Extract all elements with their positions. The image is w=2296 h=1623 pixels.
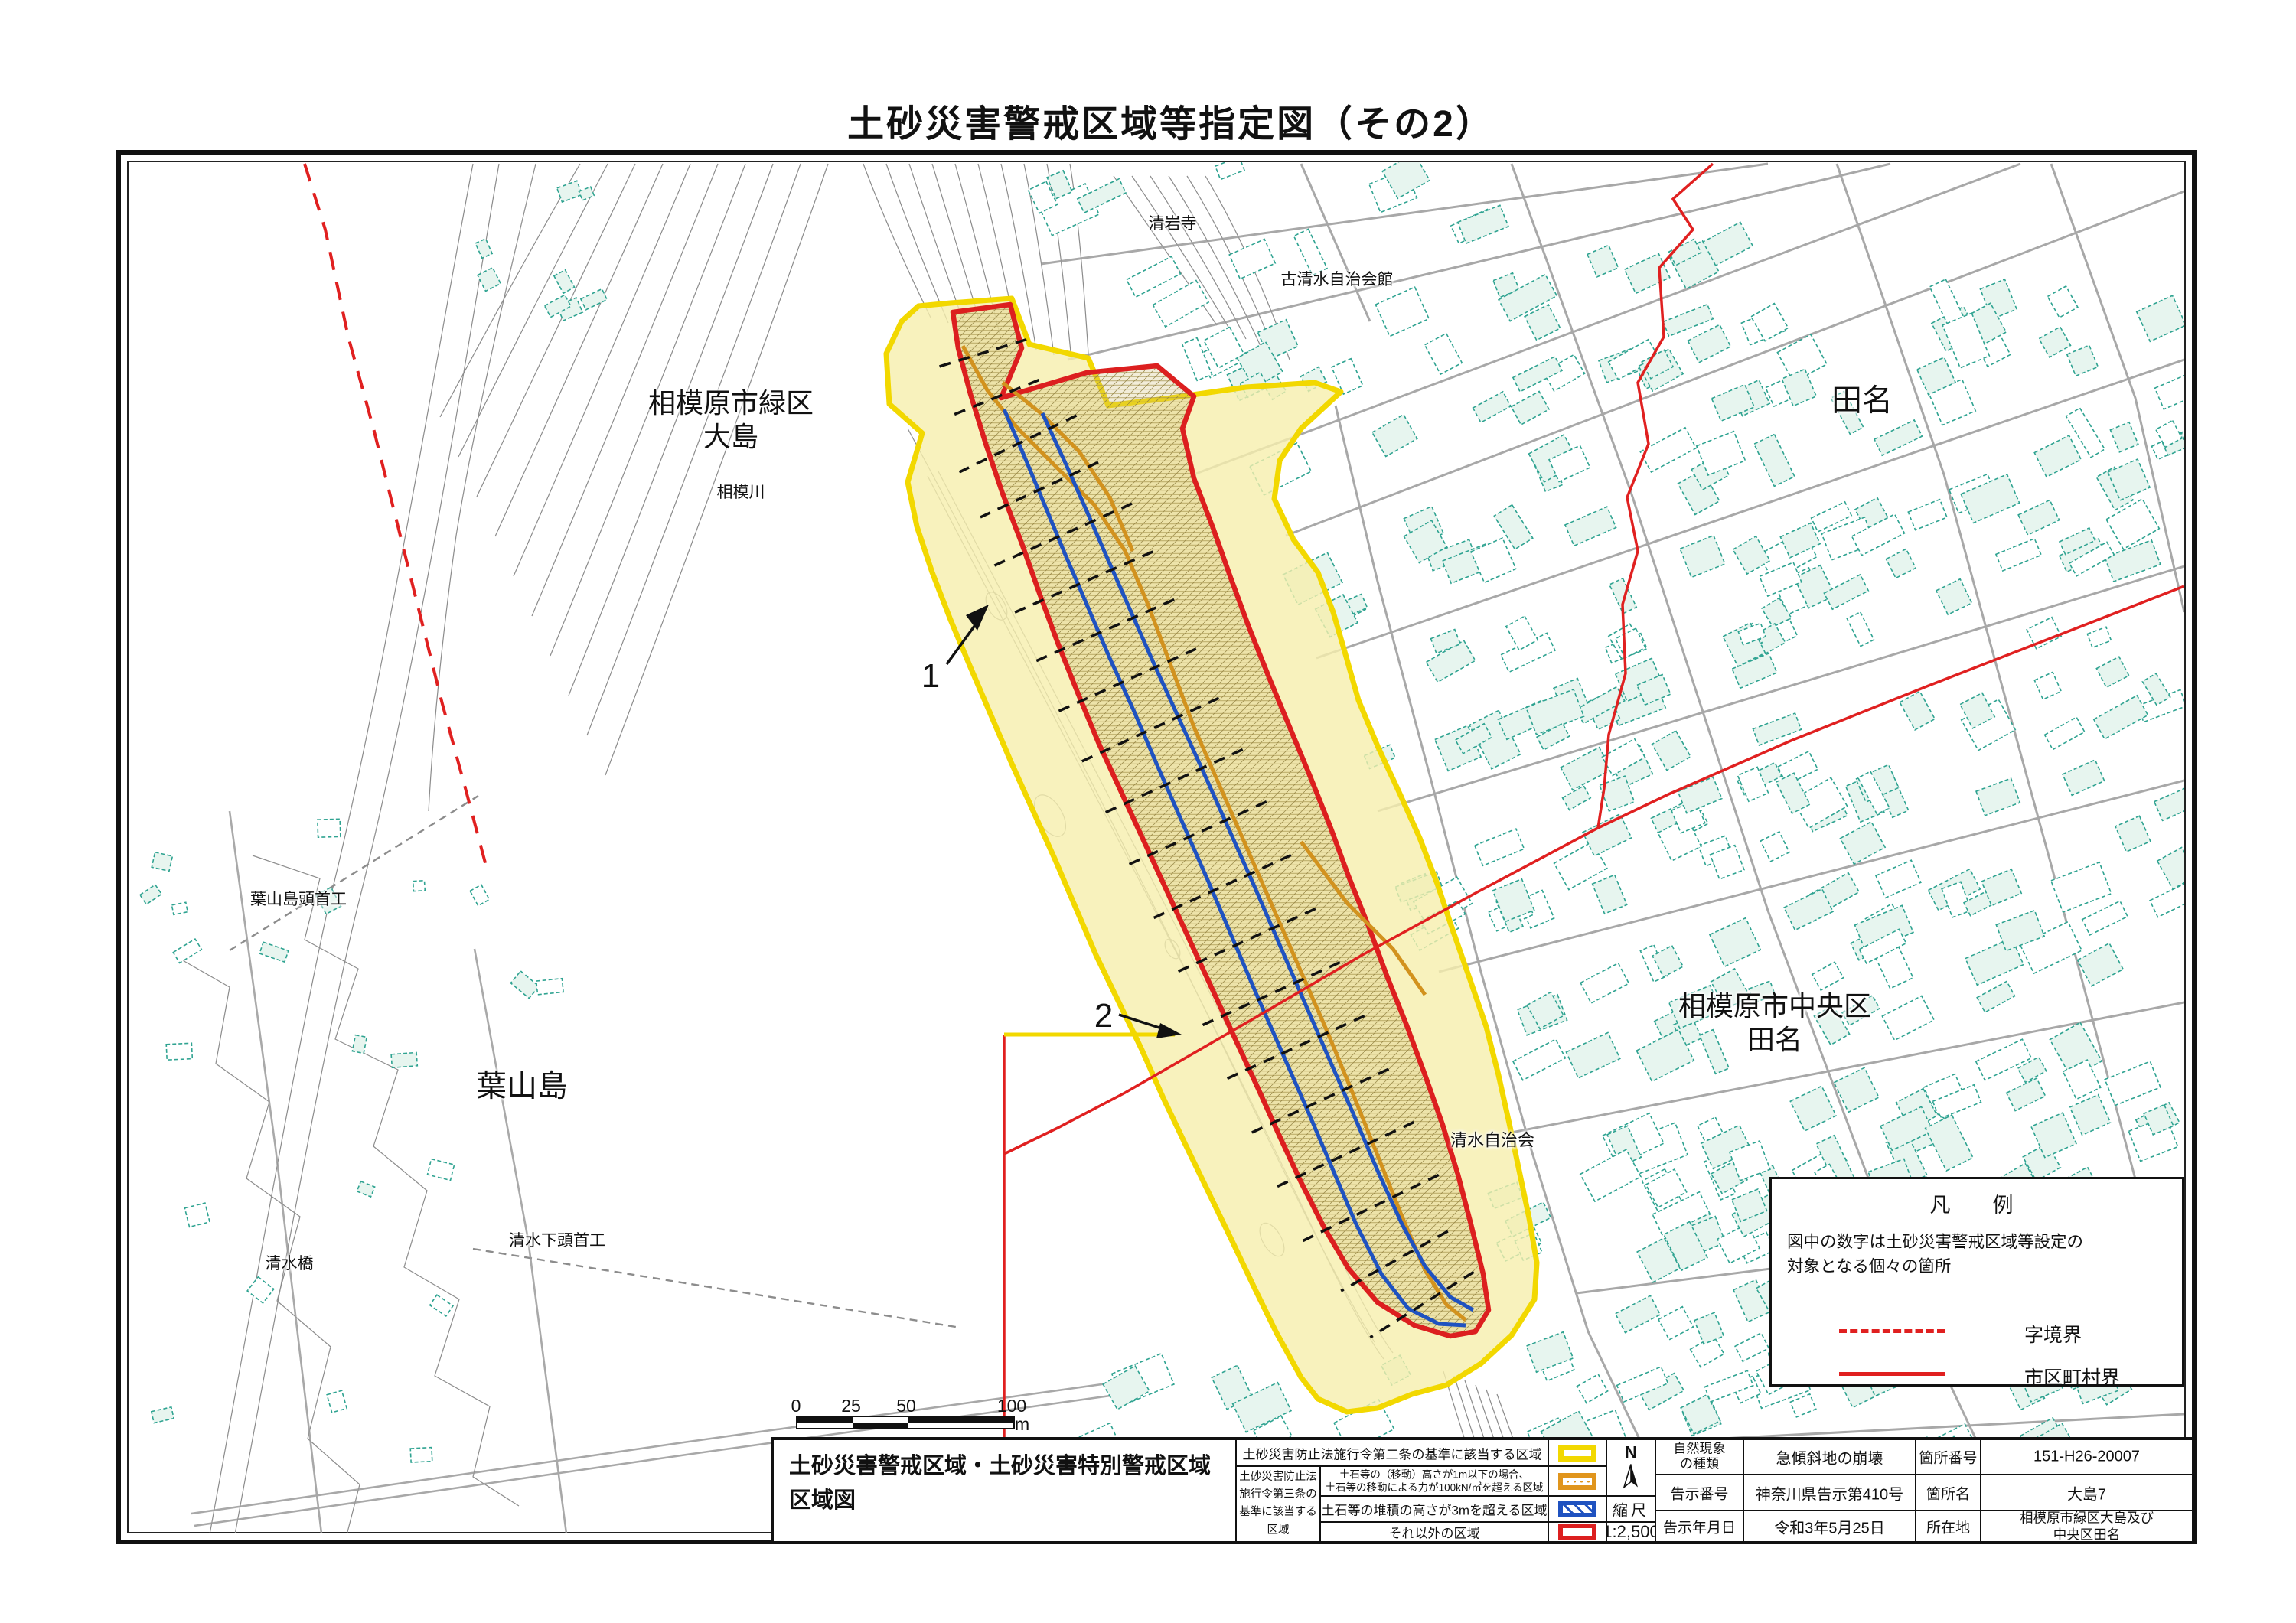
legend-swatch-blue-cell: [1549, 1497, 1607, 1523]
notice-date-label-cell: 告示年月日: [1656, 1511, 1744, 1541]
scale-bar: 0 25 50 100 m: [788, 1396, 1041, 1437]
north-arrow-icon: [1621, 1463, 1641, 1489]
legend-swatch-yellow-cell: [1549, 1440, 1607, 1467]
site-number-value-cell: 151-H26-20007: [1981, 1440, 2192, 1475]
site-name-value-cell: 大島7: [1981, 1475, 2192, 1511]
label-chuo-ward: 相模原市中央区 田名: [1678, 989, 1871, 1057]
notice-number-value-cell: 神奈川県告示第410号: [1744, 1475, 1916, 1511]
label-midori-ward: 相模原市緑区 大島: [648, 386, 814, 454]
phenomenon-value-cell: 急傾斜地の崩壊: [1744, 1440, 1916, 1475]
aza-boundary-label: 字境界: [2024, 1320, 2082, 1348]
legend-row4-label-cell: それ以外の区域: [1321, 1523, 1549, 1541]
notice-date-value-cell: 令和3年5月25日: [1744, 1511, 1916, 1541]
scale-tick-0: 0: [791, 1396, 801, 1416]
annotation-2: 2: [1094, 997, 1113, 1035]
orange-zone-swatch: [1558, 1473, 1596, 1490]
legend-swatch-red-cell: [1549, 1523, 1607, 1541]
aza-boundary-sample: [1839, 1329, 1945, 1333]
scale-tick-25: 25: [841, 1396, 861, 1416]
legend-group-label-cell: 土砂災害防止法 施行令第三条の 基準に該当する 区域: [1237, 1467, 1321, 1541]
label-hayamajima-weir: 葉山島頭首工: [250, 890, 347, 910]
legend-swatch-orange-cell: [1549, 1467, 1607, 1497]
yellow-zone-swatch: [1558, 1445, 1596, 1462]
legend-note-line1: 図中の数字は土砂災害警戒区域等設定の: [1787, 1234, 2174, 1251]
site-name-label-cell: 箇所名: [1916, 1475, 1981, 1511]
north-cell: N: [1607, 1440, 1656, 1497]
label-sagami-river: 相模川: [717, 483, 765, 503]
location-value-cell: 相模原市緑区大島及び 中央区田名: [1981, 1511, 2192, 1541]
legend-note-line2: 対象となる個々の箇所: [1787, 1259, 2174, 1276]
legend-title: 凡 例: [1930, 1188, 2024, 1218]
blue-zone-swatch: [1558, 1501, 1596, 1517]
info-band: 土砂災害警戒区域・土砂災害特別警戒区域 区域図 土砂災害防止法施行令第二条の基準…: [771, 1437, 2195, 1544]
label-seiganji-temple: 清岩寺: [1149, 214, 1197, 234]
scale-bar-graphic: [796, 1416, 1015, 1429]
site-number-label-cell: 箇所番号: [1916, 1440, 1981, 1475]
document-page: 土砂災害警戒区域等指定図（その2）: [0, 0, 2296, 1623]
north-label: N: [1621, 1443, 1641, 1463]
scale-unit: m: [1015, 1414, 1029, 1435]
notice-number-label-cell: 告示番号: [1656, 1475, 1744, 1511]
red-zone-swatch: [1558, 1524, 1596, 1540]
label-shimizu-bridge: 清水橋: [266, 1254, 314, 1274]
legend-row2-label-cell: 土石等の（移動）高さが1m以下の場合、 土石等の移動による力が100kN/㎡を超…: [1321, 1467, 1549, 1497]
scale-value-cell: 1:2,500: [1607, 1523, 1656, 1541]
phenomenon-label-cell: 自然現象 の種類: [1656, 1440, 1744, 1475]
map-sheet-title: 土砂災害警戒区域・土砂災害特別警戒区域 区域図: [774, 1440, 1237, 1541]
label-shimizu-assoc: 清水自治会: [1450, 1131, 1534, 1152]
annotation-1: 1: [921, 657, 940, 696]
label-shimizu-lower-weir: 清水下頭首工: [509, 1231, 605, 1251]
label-tana-north: 田名: [1831, 383, 1893, 420]
label-hayamajima: 葉山島: [476, 1068, 568, 1106]
legend-box: 凡 例 図中の数字は土砂災害警戒区域等設定の 対象となる個々の箇所 字境界 市区…: [1769, 1177, 2184, 1387]
legend-row1-label-cell: 土砂災害防止法施行令第二条の基準に該当する区域: [1237, 1440, 1549, 1467]
municipal-boundary-sample: [1839, 1372, 1945, 1376]
label-koshimizu-hall: 古清水自治会館: [1281, 270, 1394, 290]
municipal-boundary-label: 市区町村界: [2024, 1363, 2120, 1390]
scale-caption-cell: 縮尺: [1607, 1497, 1656, 1523]
location-label-cell: 所在地: [1916, 1511, 1981, 1541]
scale-tick-100: 100: [997, 1396, 1026, 1416]
legend-row3-label-cell: 土石等の堆積の高さが3mを超える区域: [1321, 1497, 1549, 1523]
scale-tick-50: 50: [896, 1396, 916, 1416]
